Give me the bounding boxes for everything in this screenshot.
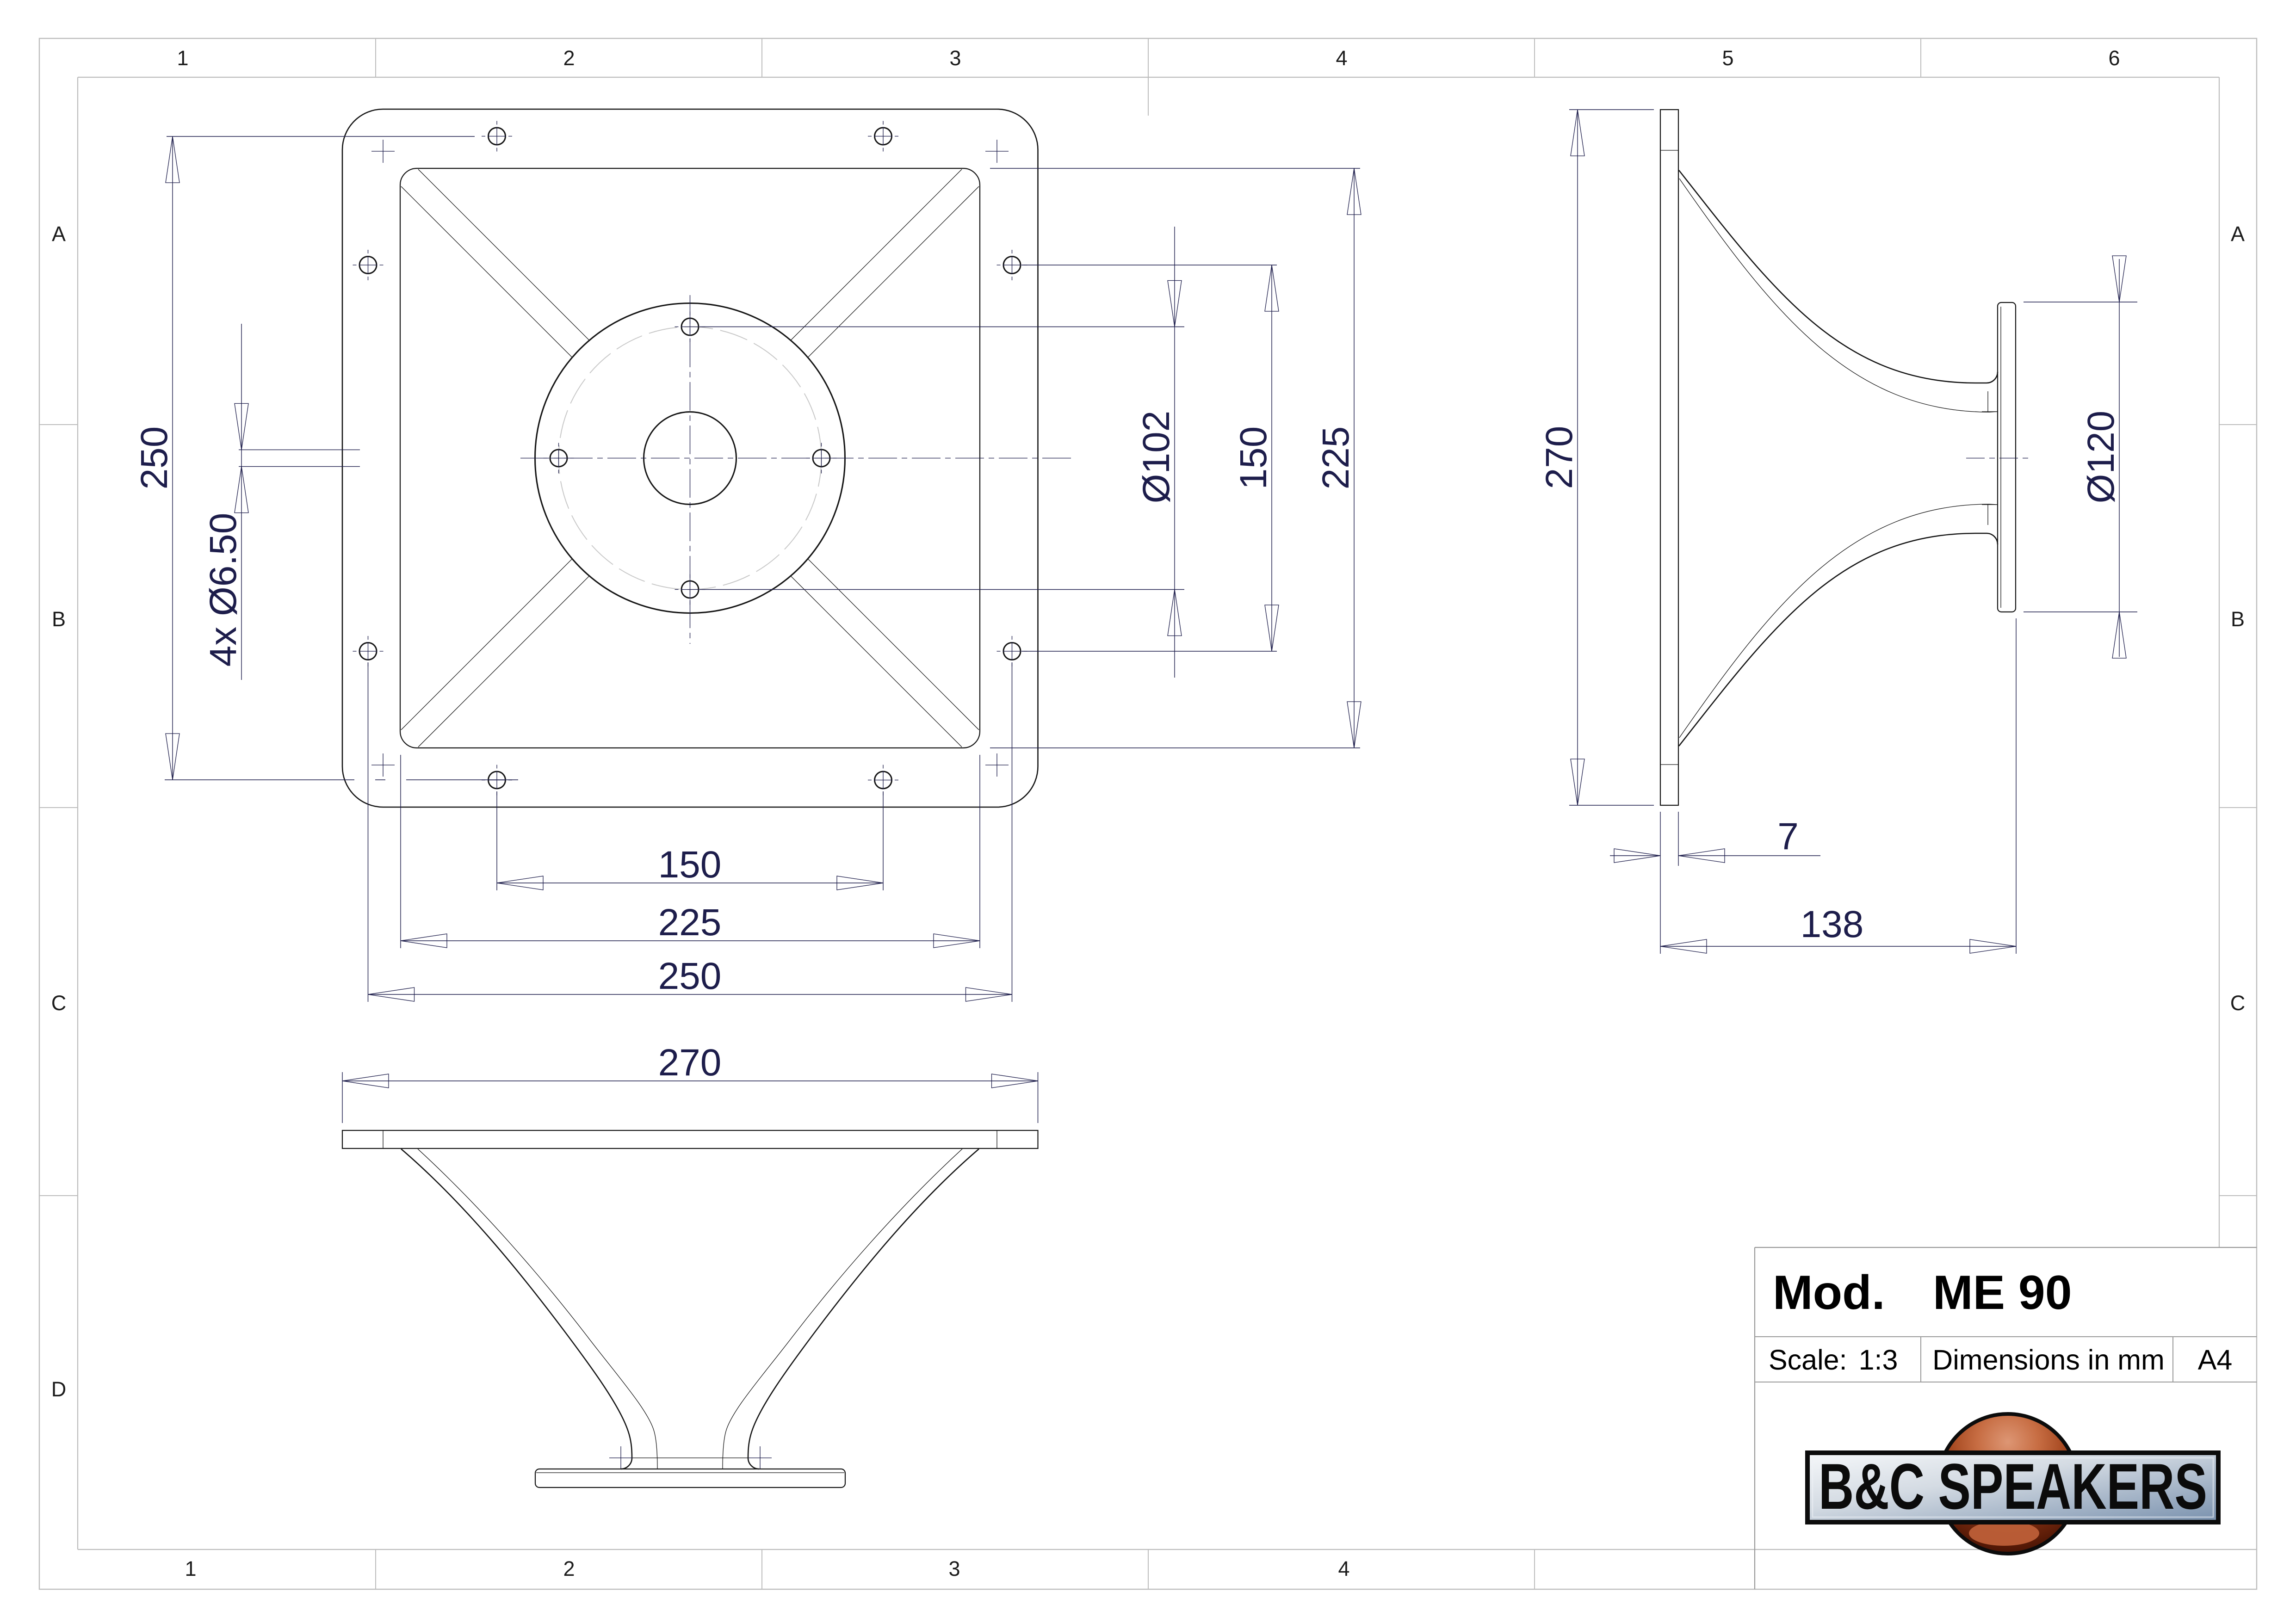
- svg-text:2: 2: [563, 46, 575, 70]
- svg-text:270: 270: [658, 1042, 722, 1084]
- svg-text:150: 150: [658, 844, 722, 886]
- svg-text:225: 225: [1315, 426, 1357, 490]
- svg-text:Dimensions in mm: Dimensions in mm: [1932, 1344, 2165, 1376]
- svg-text:A: A: [2231, 222, 2245, 246]
- svg-text:4: 4: [1338, 1557, 1349, 1580]
- svg-text:6: 6: [2108, 46, 2120, 70]
- svg-text:1: 1: [185, 1557, 196, 1580]
- svg-text:ME 90: ME 90: [1933, 1266, 2072, 1320]
- svg-text:1:3: 1:3: [1859, 1344, 1898, 1376]
- svg-text:B: B: [2231, 607, 2245, 631]
- svg-text:A: A: [52, 222, 66, 246]
- svg-text:138: 138: [1801, 903, 1864, 945]
- svg-text:Ø102: Ø102: [1135, 411, 1177, 504]
- svg-text:3: 3: [949, 46, 961, 70]
- svg-text:270: 270: [1538, 426, 1580, 489]
- svg-text:C: C: [2230, 991, 2246, 1015]
- svg-text:C: C: [51, 991, 67, 1015]
- svg-text:7: 7: [1777, 815, 1799, 858]
- svg-text:4: 4: [1336, 46, 1347, 70]
- svg-text:B: B: [52, 607, 66, 631]
- svg-text:3: 3: [948, 1557, 960, 1580]
- svg-text:4x Ø6.50: 4x Ø6.50: [202, 513, 244, 667]
- svg-text:Scale:: Scale:: [1769, 1344, 1847, 1376]
- svg-text:D: D: [51, 1377, 67, 1401]
- svg-text:250: 250: [133, 426, 175, 490]
- svg-text:250: 250: [658, 955, 722, 997]
- svg-text:2: 2: [563, 1557, 575, 1580]
- svg-text:A4: A4: [2198, 1344, 2233, 1376]
- svg-text:B&C SPEAKERS: B&C SPEAKERS: [1819, 1450, 2207, 1523]
- svg-text:150: 150: [1232, 426, 1275, 490]
- svg-text:225: 225: [658, 901, 722, 944]
- svg-text:5: 5: [1722, 46, 1733, 70]
- svg-text:Mod.: Mod.: [1773, 1266, 1885, 1320]
- svg-text:1: 1: [177, 46, 188, 70]
- svg-text:Ø120: Ø120: [2080, 411, 2122, 504]
